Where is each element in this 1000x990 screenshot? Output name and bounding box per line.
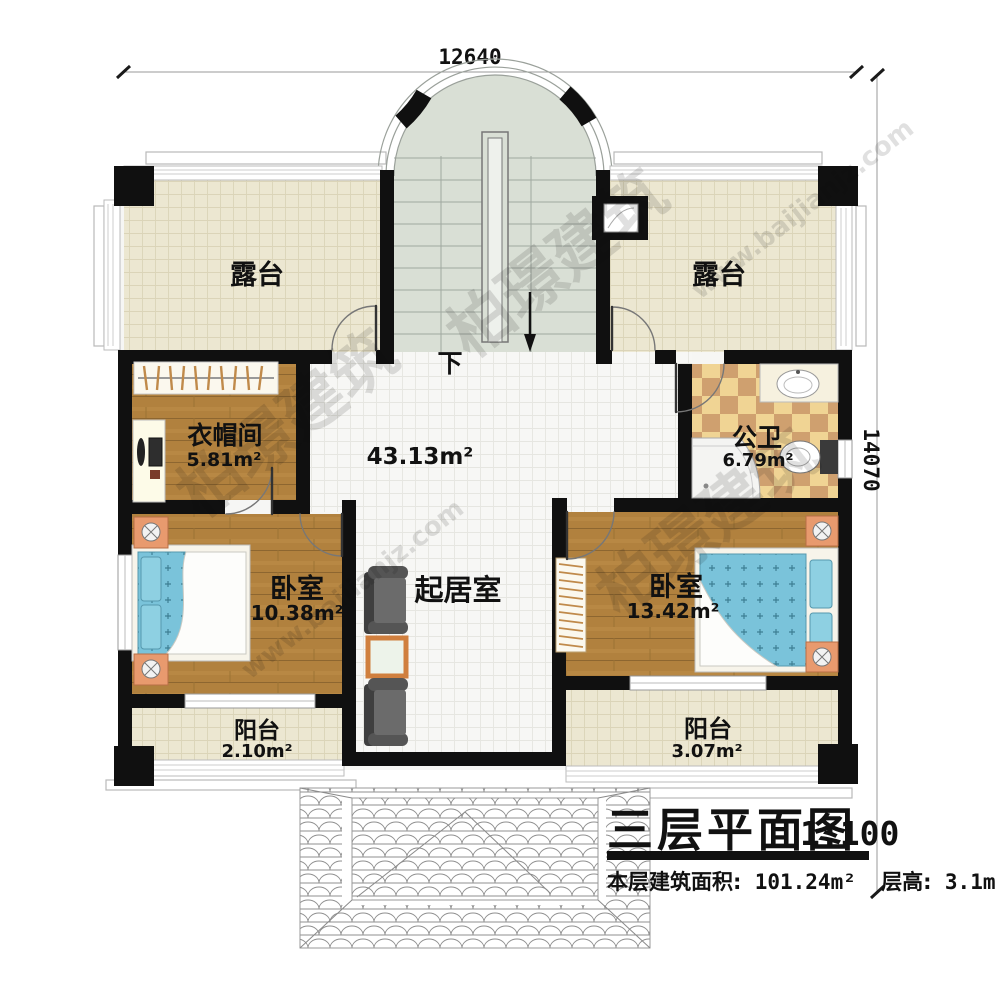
floor-height-label: 层高: bbox=[881, 870, 931, 894]
dimension-top-label: 12640 bbox=[438, 45, 501, 69]
floor-area-line: 本层建筑面积: 101.24m² 层高: 3.1m bbox=[607, 870, 995, 894]
label-bathroom-area: 6.79m² bbox=[722, 450, 793, 471]
dresser bbox=[133, 420, 165, 502]
left-bed bbox=[132, 545, 250, 661]
nightstand bbox=[134, 654, 168, 685]
wardrobe bbox=[556, 558, 586, 652]
label-bathroom: 公卫 bbox=[732, 423, 782, 452]
coffee-table bbox=[368, 638, 406, 676]
label-terrace-right: 露台 bbox=[692, 259, 746, 291]
label-bedroom-right-area: 13.42m² bbox=[627, 599, 720, 623]
title-underline bbox=[607, 851, 869, 860]
corner-column bbox=[114, 166, 154, 206]
label-balcony-right-area: 3.07m² bbox=[671, 741, 742, 762]
sink bbox=[760, 364, 838, 402]
floor-plan-page: 12640 14070 bbox=[0, 0, 1000, 990]
label-bedroom-left-area: 10.38m² bbox=[251, 601, 344, 625]
nightstand bbox=[134, 517, 168, 548]
label-balcony-left: 阳台 bbox=[234, 717, 280, 744]
label-stairs-down: 下 bbox=[437, 349, 462, 378]
plan-scale: 1:100 bbox=[800, 814, 899, 853]
corner-column bbox=[818, 744, 858, 784]
floor-area-value: 101.24m² bbox=[755, 870, 856, 894]
clothes-rack bbox=[134, 362, 278, 394]
floor-plan-svg: 12640 14070 bbox=[0, 0, 1000, 990]
floor-area-label: 本层建筑面积: bbox=[607, 870, 741, 894]
nightstand bbox=[806, 642, 838, 672]
label-balcony-left-area: 2.10m² bbox=[221, 741, 292, 762]
armchair bbox=[364, 678, 408, 746]
label-living: 起居室 bbox=[414, 573, 501, 607]
label-living-area: 43.13m² bbox=[367, 444, 474, 470]
label-terrace-left: 露台 bbox=[230, 259, 284, 291]
label-cloakroom: 衣帽间 bbox=[187, 421, 262, 450]
label-cloakroom-area: 5.81m² bbox=[187, 449, 262, 471]
porch-roof bbox=[300, 788, 650, 948]
dimension-right-label: 14070 bbox=[859, 428, 883, 491]
floor-height-value: 3.1m bbox=[945, 870, 996, 894]
nightstand bbox=[806, 516, 838, 546]
corner-column bbox=[114, 746, 154, 786]
label-balcony-right: 阳台 bbox=[684, 715, 732, 743]
